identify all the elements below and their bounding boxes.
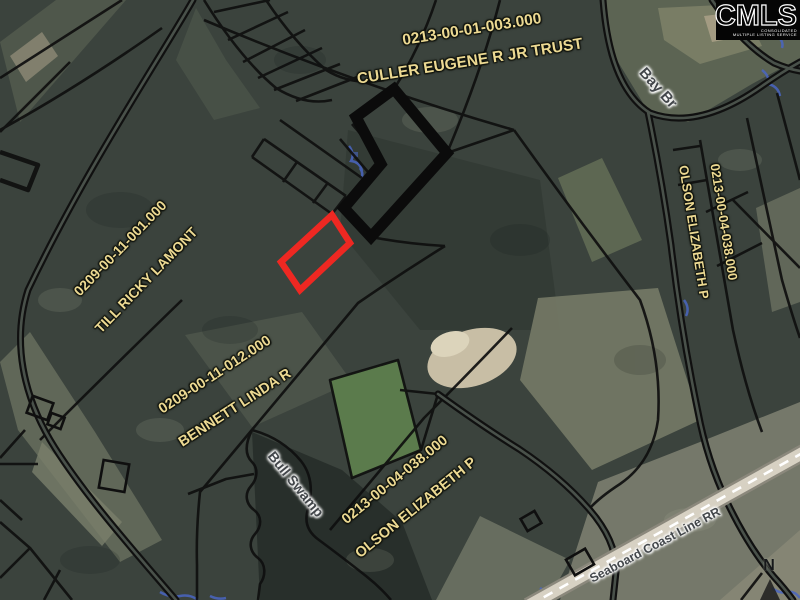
cmls-logo-wordmark: CMLS [715, 3, 797, 29]
cmls-logo-tagline-2: MULTIPLE LISTING SERVICE [733, 33, 797, 38]
parcel-map: 0213-00-01-003.000 CULLER EUGENE R JR TR… [0, 0, 800, 600]
north-label: N [763, 557, 775, 575]
cmls-logo: CMLS CONSOLIDATED MULTIPLE LISTING SERVI… [716, 0, 800, 40]
